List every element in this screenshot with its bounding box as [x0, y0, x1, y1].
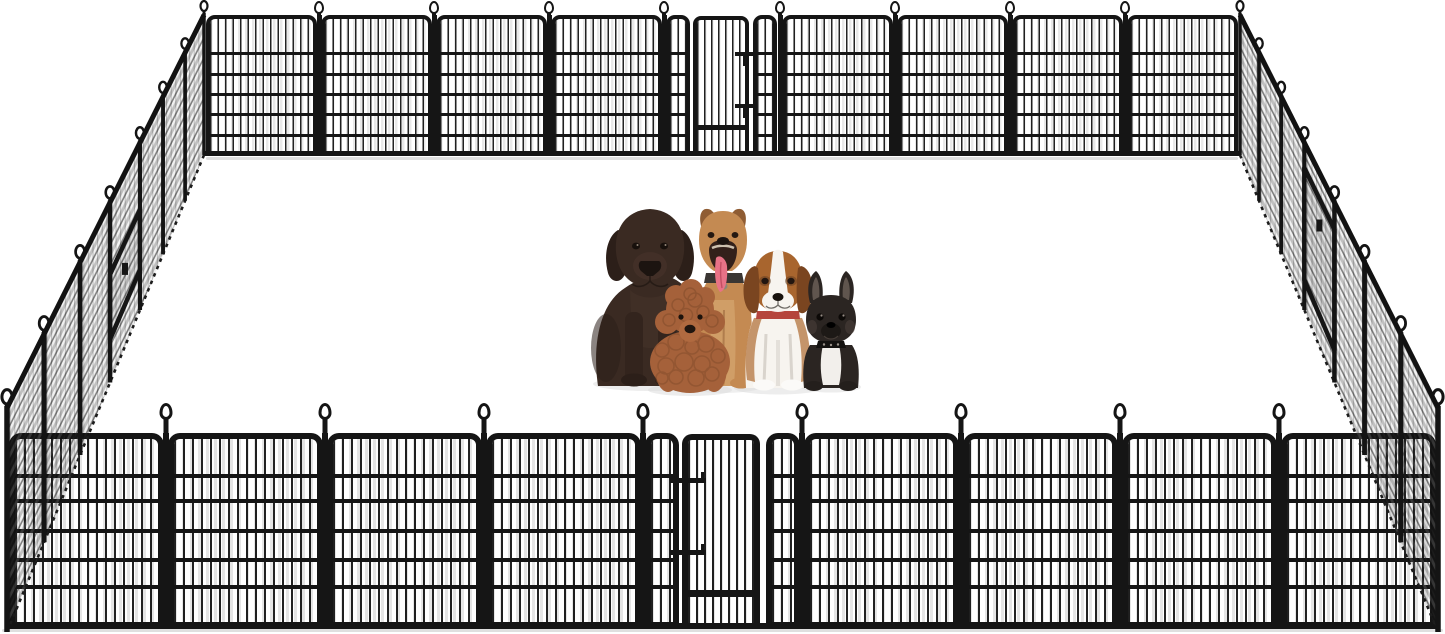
dog-french-bulldog — [803, 271, 859, 391]
dog-beagle — [743, 250, 812, 391]
playpen-scene — [0, 0, 1445, 634]
dogs-group — [0, 0, 1445, 634]
